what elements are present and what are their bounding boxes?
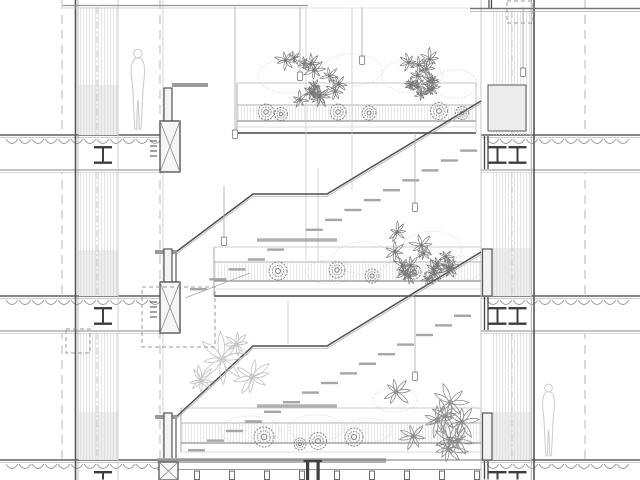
stair-tread	[302, 391, 319, 393]
stair-tread	[416, 334, 433, 336]
stair-tread	[267, 248, 284, 250]
stair-tread	[306, 229, 323, 231]
stair-tread	[245, 420, 262, 422]
floor-slab	[481, 135, 640, 173]
stair-tread	[441, 159, 458, 161]
stair-tread	[264, 411, 281, 413]
stair-tread	[460, 149, 477, 151]
stair-tread	[378, 353, 395, 355]
mullion-pair	[306, 462, 309, 480]
stair-tread	[383, 189, 400, 191]
stair-tread	[344, 209, 361, 211]
stair-tread	[435, 324, 452, 326]
stair-tread	[190, 288, 207, 290]
stair-tread	[359, 363, 376, 365]
stair-tread	[325, 219, 342, 221]
atrium-stair-section	[0, 0, 640, 480]
stair-tread	[283, 401, 300, 403]
architectural-section-drawing	[0, 0, 640, 480]
far-handrail	[257, 238, 337, 241]
window-post	[335, 471, 340, 480]
floor-slab	[0, 135, 163, 173]
wall-mullion-member	[483, 413, 493, 460]
window-post	[300, 471, 305, 480]
stair-tread	[188, 449, 205, 451]
stair-tread	[321, 382, 338, 384]
stair-tread	[209, 278, 226, 280]
wall-mullion-member	[483, 249, 493, 296]
floor-slab	[481, 460, 640, 480]
stair-tread	[340, 372, 357, 374]
floor-slab	[0, 296, 163, 334]
stair-tread	[422, 169, 439, 171]
stair-tread	[397, 343, 414, 345]
mullion-pair	[317, 462, 320, 480]
window-post	[440, 471, 445, 480]
floor-slab	[0, 460, 163, 480]
window-post	[475, 471, 480, 480]
stair-tread	[248, 258, 265, 260]
stair-tread	[364, 199, 381, 201]
mullion-detail	[164, 413, 172, 460]
window-post	[265, 471, 270, 480]
window-post	[405, 471, 410, 480]
window-post	[195, 471, 200, 480]
stair-tread	[207, 439, 224, 441]
gallery-handrail-stub	[172, 83, 208, 87]
window-post	[370, 471, 375, 480]
floor-slab	[481, 296, 640, 334]
stair-tread	[226, 430, 243, 432]
wall-panel-detail	[488, 85, 526, 131]
far-handrail	[257, 404, 337, 407]
window-post	[230, 471, 235, 480]
stair-tread	[454, 315, 471, 317]
stair-tread	[402, 179, 419, 181]
stair-tread	[229, 268, 246, 270]
